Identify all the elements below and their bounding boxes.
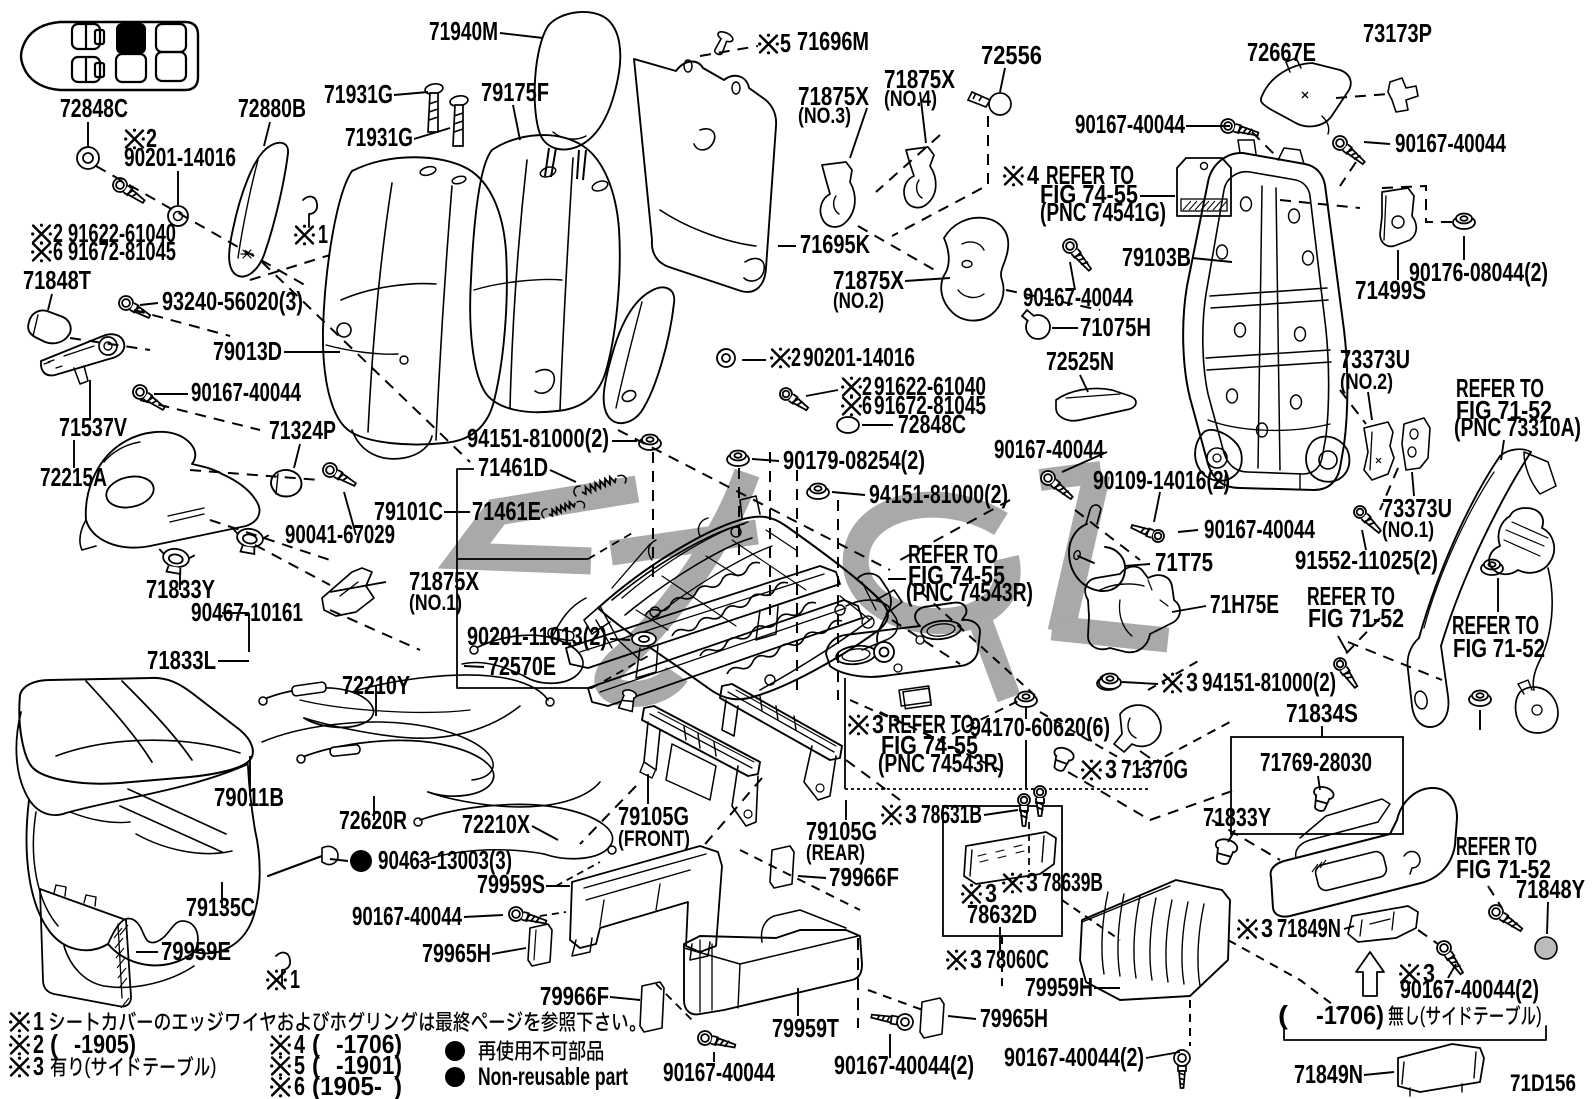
svg-text:(NO.1): (NO.1) bbox=[1382, 517, 1434, 542]
svg-text:90167-40044: 90167-40044 bbox=[191, 377, 301, 407]
svg-text:6: 6 bbox=[294, 1071, 305, 1099]
svg-text:72210X: 72210X bbox=[462, 809, 530, 839]
svg-text:79965H: 79965H bbox=[980, 1003, 1048, 1033]
svg-text:71849N: 71849N bbox=[1277, 913, 1341, 943]
svg-text:72215A: 72215A bbox=[40, 462, 107, 492]
svg-text:90201-11013(2): 90201-11013(2) bbox=[467, 621, 607, 651]
svg-text:72620R: 72620R bbox=[339, 805, 407, 835]
svg-text:1: 1 bbox=[318, 219, 328, 249]
svg-text:FIG 71-52: FIG 71-52 bbox=[1453, 633, 1545, 663]
svg-text:(1905-: (1905- bbox=[312, 1071, 382, 1099]
svg-text:94170-60620(6): 94170-60620(6) bbox=[970, 712, 1110, 742]
svg-text:90167-40044: 90167-40044 bbox=[1023, 282, 1133, 312]
svg-text:90167-40044: 90167-40044 bbox=[1395, 128, 1506, 158]
svg-text:79135C: 79135C bbox=[186, 892, 255, 922]
svg-text:3: 3 bbox=[1186, 667, 1198, 697]
svg-text:71848T: 71848T bbox=[23, 265, 91, 295]
svg-text:72570E: 72570E bbox=[488, 651, 556, 681]
svg-text:79175F: 79175F bbox=[481, 77, 549, 107]
svg-text:91672-81045: 91672-81045 bbox=[68, 236, 176, 266]
svg-text:90167-40044(2): 90167-40044(2) bbox=[1400, 974, 1539, 1004]
svg-text:71931G: 71931G bbox=[345, 122, 413, 152]
svg-text:71461E: 71461E bbox=[472, 496, 541, 526]
svg-text:72210Y: 72210Y bbox=[342, 670, 410, 700]
svg-text:72848C: 72848C bbox=[60, 93, 128, 123]
svg-text:71075H: 71075H bbox=[1080, 312, 1151, 342]
svg-text:90167-40044: 90167-40044 bbox=[994, 434, 1104, 464]
svg-text:90201-14016: 90201-14016 bbox=[803, 342, 915, 372]
svg-text:90167-40044: 90167-40044 bbox=[1204, 514, 1315, 544]
svg-text:3: 3 bbox=[1261, 913, 1273, 943]
svg-text:90179-08254(2): 90179-08254(2) bbox=[783, 445, 925, 475]
svg-text:-1905): -1905) bbox=[74, 1029, 136, 1059]
svg-text:71849N: 71849N bbox=[1294, 1059, 1363, 1089]
svg-text:79966F: 79966F bbox=[829, 862, 899, 892]
svg-text:91552-11025(2): 91552-11025(2) bbox=[1295, 545, 1438, 575]
svg-text:(: ( bbox=[50, 1029, 58, 1059]
svg-text:71931G: 71931G bbox=[324, 79, 393, 109]
svg-text:90201-14016: 90201-14016 bbox=[124, 142, 236, 172]
svg-text:94151-81000(2): 94151-81000(2) bbox=[1202, 667, 1336, 697]
svg-text:71537V: 71537V bbox=[59, 412, 127, 442]
svg-text:93240-56020(3): 93240-56020(3) bbox=[162, 286, 303, 316]
svg-text:94151-81000(2): 94151-81000(2) bbox=[467, 423, 609, 453]
svg-text:5: 5 bbox=[780, 28, 791, 58]
svg-text:90167-40044: 90167-40044 bbox=[1075, 109, 1185, 139]
svg-text:71370G: 71370G bbox=[1121, 754, 1188, 784]
svg-text:): ) bbox=[394, 1071, 402, 1099]
svg-text:4: 4 bbox=[1027, 160, 1039, 190]
svg-text:2: 2 bbox=[791, 342, 801, 372]
svg-text:3: 3 bbox=[905, 799, 917, 829]
svg-text:71833L: 71833L bbox=[147, 645, 216, 675]
svg-text:79013D: 79013D bbox=[213, 336, 282, 366]
svg-text:71834S: 71834S bbox=[1286, 698, 1358, 728]
svg-text:71769-28030: 71769-28030 bbox=[1260, 747, 1372, 777]
svg-text:79959H: 79959H bbox=[1025, 972, 1093, 1002]
svg-text:72848C: 72848C bbox=[898, 409, 966, 439]
svg-text:78631B: 78631B bbox=[921, 799, 982, 829]
svg-text:79966F: 79966F bbox=[540, 981, 609, 1011]
svg-text:90109-14016(2): 90109-14016(2) bbox=[1093, 465, 1230, 495]
svg-text:94151-81000(2): 94151-81000(2) bbox=[869, 479, 1008, 509]
svg-text:90167-40044: 90167-40044 bbox=[352, 901, 462, 931]
svg-text:78639B: 78639B bbox=[1042, 867, 1103, 897]
svg-text:3: 3 bbox=[970, 944, 982, 974]
svg-text:79959T: 79959T bbox=[772, 1013, 839, 1043]
svg-text:71499S: 71499S bbox=[1355, 275, 1426, 305]
svg-text:79965H: 79965H bbox=[422, 938, 491, 968]
svg-text:(FRONT): (FRONT) bbox=[618, 826, 690, 851]
svg-text:79011B: 79011B bbox=[214, 782, 284, 812]
svg-text:(PNC 73310A): (PNC 73310A) bbox=[1454, 412, 1581, 442]
svg-text:78632D: 78632D bbox=[967, 899, 1037, 929]
svg-text:71833Y: 71833Y bbox=[1203, 802, 1271, 832]
svg-text:71848Y: 71848Y bbox=[1516, 874, 1585, 904]
svg-text:1: 1 bbox=[290, 964, 300, 994]
svg-text:3: 3 bbox=[1105, 754, 1117, 784]
svg-text:78060C: 78060C bbox=[986, 944, 1049, 974]
svg-text:(NO.4): (NO.4) bbox=[884, 86, 937, 111]
svg-text:(NO.2): (NO.2) bbox=[833, 288, 884, 313]
svg-text:79103B: 79103B bbox=[1122, 242, 1191, 272]
svg-text:(NO.2): (NO.2) bbox=[1340, 369, 1393, 394]
svg-text:90467-10161: 90467-10161 bbox=[191, 597, 303, 627]
svg-text:(PNC 74541G): (PNC 74541G) bbox=[1040, 197, 1166, 227]
svg-text:71461D: 71461D bbox=[478, 452, 548, 482]
svg-text:3: 3 bbox=[33, 1051, 44, 1081]
svg-text:6: 6 bbox=[53, 236, 63, 266]
svg-text:71940M: 71940M bbox=[429, 16, 498, 46]
svg-text:79959S: 79959S bbox=[477, 869, 545, 899]
svg-text:3: 3 bbox=[1026, 867, 1038, 897]
svg-text:72880B: 72880B bbox=[238, 93, 306, 123]
svg-text:90167-40044: 90167-40044 bbox=[663, 1057, 775, 1087]
svg-text:(PNC 74543R): (PNC 74543R) bbox=[906, 577, 1033, 607]
svg-text:73173P: 73173P bbox=[1363, 18, 1432, 48]
svg-text:71324P: 71324P bbox=[269, 415, 336, 445]
svg-text:90041-67029: 90041-67029 bbox=[285, 519, 395, 549]
svg-text:71D156: 71D156 bbox=[1510, 1070, 1576, 1097]
svg-text:(NO.1): (NO.1) bbox=[409, 590, 462, 615]
svg-text:FIG 71-52: FIG 71-52 bbox=[1308, 603, 1404, 633]
svg-text:(PNC 74543R): (PNC 74543R) bbox=[878, 748, 1004, 778]
svg-text:(NO.3): (NO.3) bbox=[798, 103, 851, 128]
svg-text:72525N: 72525N bbox=[1046, 346, 1114, 376]
svg-text:6: 6 bbox=[862, 390, 872, 420]
svg-text:79959E: 79959E bbox=[161, 936, 231, 966]
svg-text:71H75E: 71H75E bbox=[1210, 589, 1279, 619]
svg-text:72667E: 72667E bbox=[1247, 37, 1316, 67]
svg-text:71696M: 71696M bbox=[797, 26, 869, 56]
svg-text:-1706): -1706) bbox=[1316, 1000, 1384, 1030]
svg-text:90167-40044(2): 90167-40044(2) bbox=[1004, 1042, 1144, 1072]
svg-text:Non-reusable part: Non-reusable part bbox=[478, 1063, 628, 1091]
svg-text:71T75: 71T75 bbox=[1155, 547, 1213, 577]
svg-text:90167-40044(2): 90167-40044(2) bbox=[834, 1050, 974, 1080]
svg-text:71695K: 71695K bbox=[800, 229, 870, 259]
svg-text:(: ( bbox=[1278, 1000, 1288, 1030]
svg-text:90176-08044(2): 90176-08044(2) bbox=[1409, 257, 1548, 287]
svg-text:72556: 72556 bbox=[981, 40, 1042, 70]
